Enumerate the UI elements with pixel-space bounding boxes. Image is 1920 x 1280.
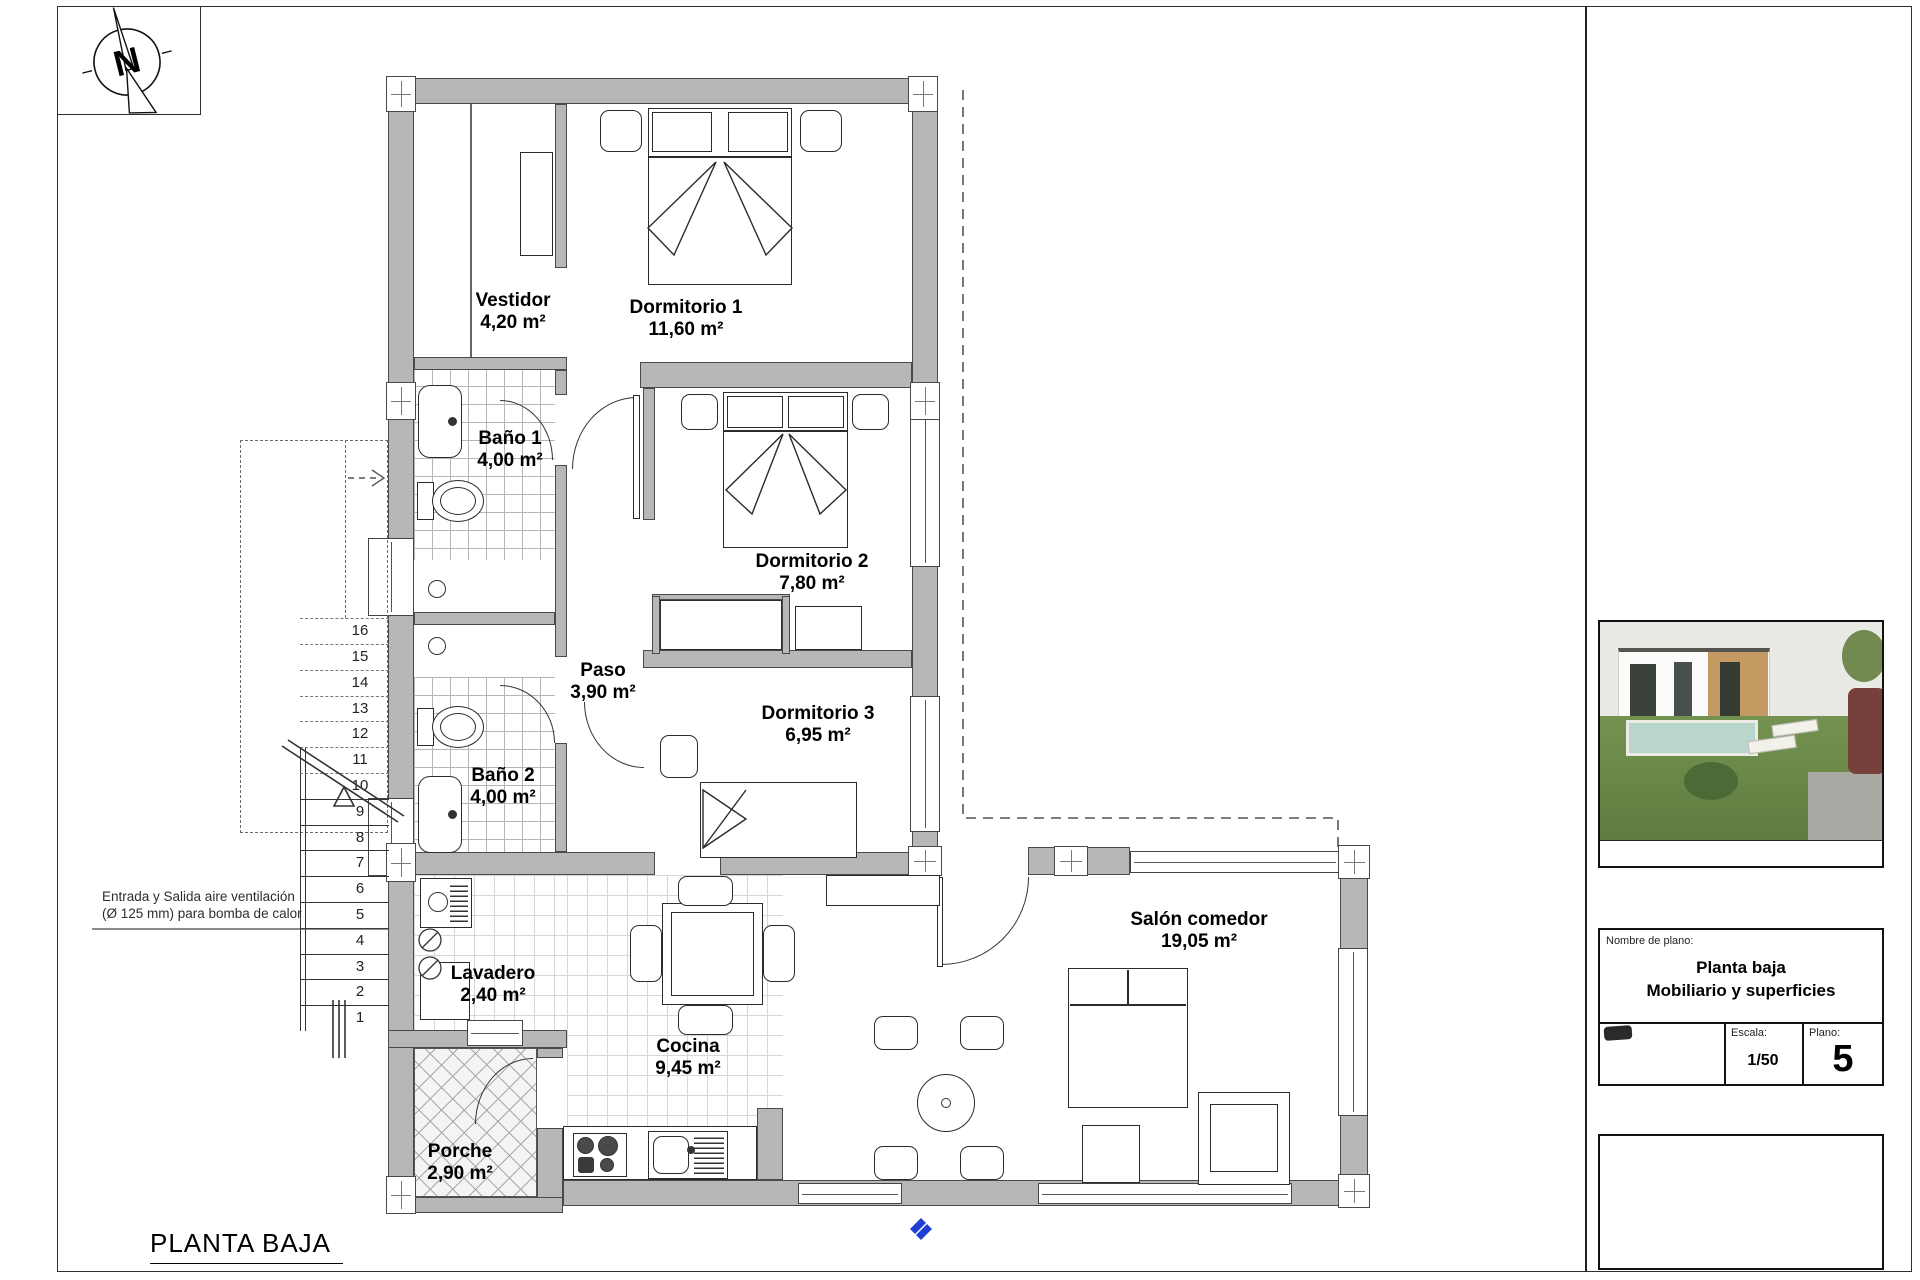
title-block-name-label: Nombre de plano: [1606, 935, 1693, 947]
plan-name-line1: Planta baja [1600, 958, 1882, 978]
plan-name-line2: Mobiliario y superficies [1600, 981, 1882, 1001]
sheet-number: 5 [1802, 1038, 1884, 1081]
render-tree [1842, 630, 1884, 682]
render-window [1720, 662, 1740, 716]
render-window [1674, 662, 1692, 716]
render-window [1630, 664, 1656, 716]
render-white-strip [1600, 840, 1882, 868]
render-image [1598, 620, 1884, 868]
scale-value: 1/50 [1724, 1052, 1802, 1070]
drawing-sheet: N [0, 0, 1920, 1280]
render-car [1848, 688, 1884, 774]
scale-label: Escala: [1731, 1027, 1767, 1039]
render-pool [1626, 720, 1758, 756]
render-path [1808, 772, 1884, 840]
stamp-smudge [1604, 1025, 1633, 1041]
south-wall-blue-symbol [910, 1218, 932, 1240]
title-block-row-divider [1600, 1022, 1882, 1024]
render-bush [1684, 762, 1738, 800]
title-block: Nombre de plano: Planta baja Mobiliario … [1598, 928, 1884, 1086]
roof-overhang-dashed [963, 90, 1338, 847]
notes-box-empty [1598, 1134, 1884, 1270]
